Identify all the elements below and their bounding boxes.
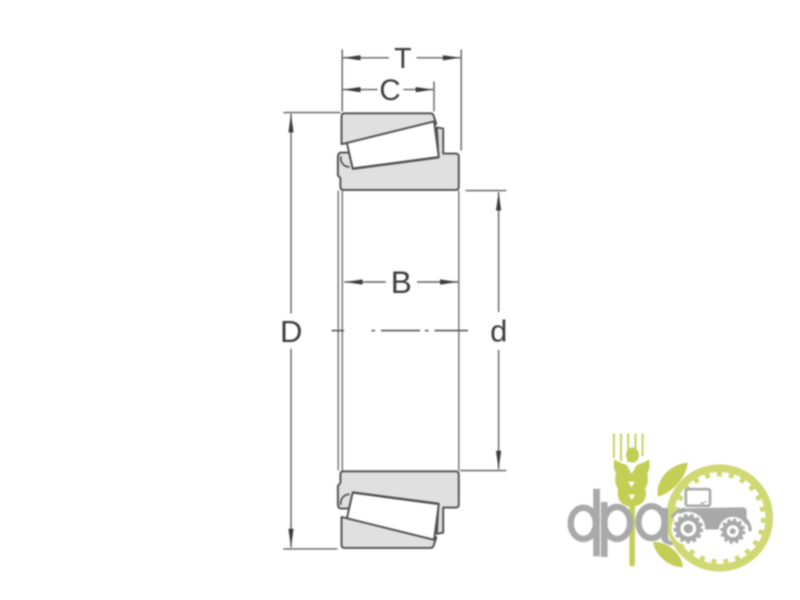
svg-text:T: T <box>394 43 411 75</box>
svg-text:D: D <box>280 314 302 349</box>
svg-text:B: B <box>391 264 412 300</box>
svg-text:d: d <box>490 313 507 348</box>
svg-text:C: C <box>379 74 400 107</box>
